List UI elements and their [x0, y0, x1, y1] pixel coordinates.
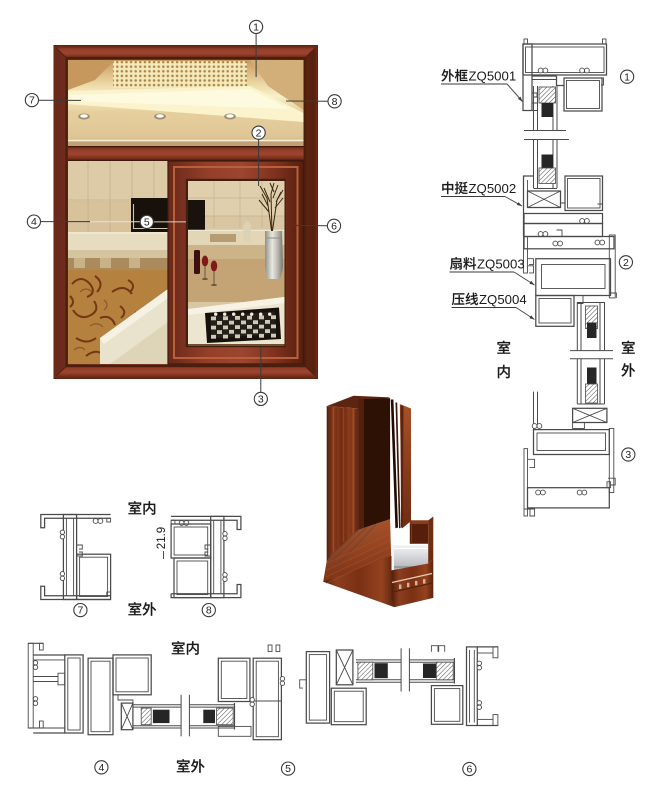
svg-text:8: 8 [332, 96, 338, 108]
svg-text:2: 2 [256, 127, 262, 139]
svg-text:6: 6 [331, 220, 337, 232]
svg-text:8: 8 [206, 605, 212, 617]
svg-text:5: 5 [285, 763, 291, 775]
svg-text:1: 1 [624, 71, 630, 83]
svg-text:ZQ5002: ZQ5002 [469, 181, 517, 196]
svg-text:ZQ5001: ZQ5001 [469, 69, 517, 84]
svg-text:4: 4 [31, 216, 37, 228]
svg-text:ZQ5004: ZQ5004 [479, 292, 527, 307]
svg-text:6: 6 [466, 764, 472, 776]
svg-text:5: 5 [144, 217, 150, 229]
svg-text:21.9: 21.9 [156, 527, 168, 549]
svg-text:1: 1 [253, 22, 259, 34]
svg-text:7: 7 [77, 605, 83, 617]
svg-text:3: 3 [258, 394, 264, 406]
svg-text:ZQ5003: ZQ5003 [477, 257, 525, 272]
svg-text:2: 2 [623, 257, 629, 269]
svg-text:7: 7 [29, 95, 35, 107]
svg-text:3: 3 [625, 449, 631, 461]
svg-text:4: 4 [98, 762, 104, 774]
